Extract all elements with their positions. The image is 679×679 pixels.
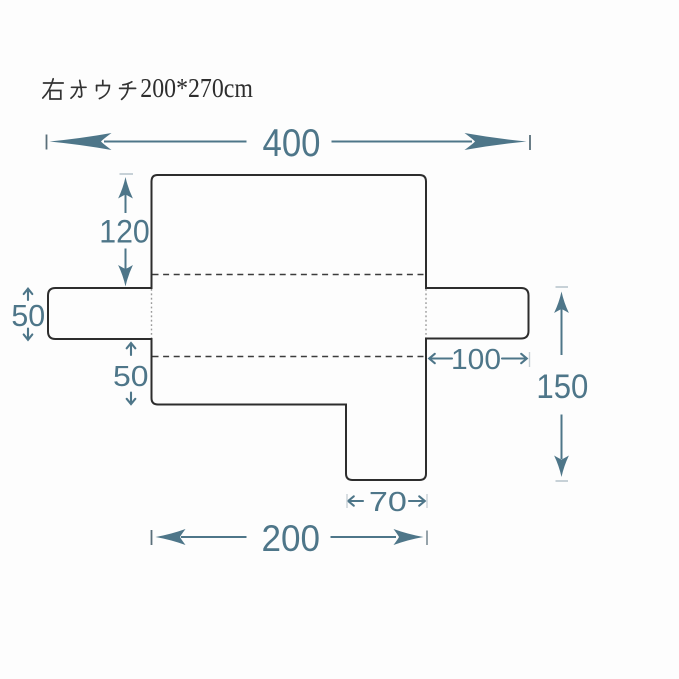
svg-text:50: 50 <box>11 298 45 333</box>
svg-text:100: 100 <box>451 344 501 376</box>
svg-text:150: 150 <box>536 368 588 406</box>
svg-text:70: 70 <box>369 486 407 517</box>
svg-text:400: 400 <box>263 122 321 165</box>
svg-text:120: 120 <box>99 213 150 250</box>
svg-text:200*270cm: 200*270cm <box>140 73 253 103</box>
svg-text:50: 50 <box>113 361 149 393</box>
svg-text:200: 200 <box>262 518 321 559</box>
